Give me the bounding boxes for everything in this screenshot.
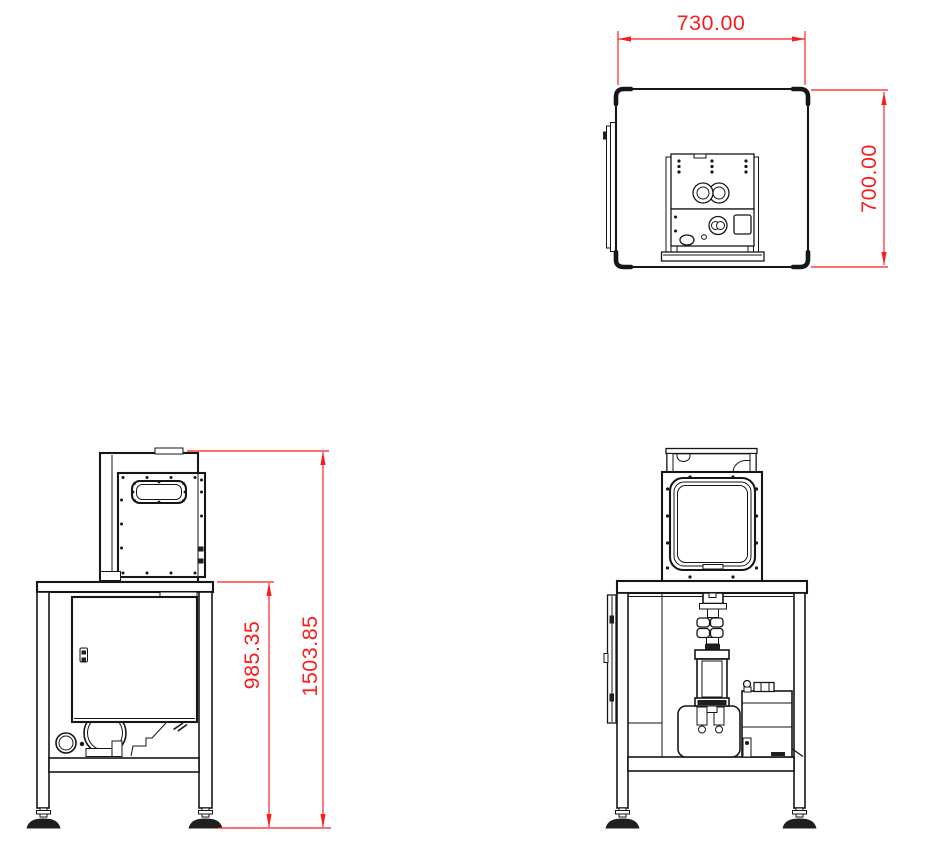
tabletop (617, 581, 807, 593)
dim-overall-height-text: 1503.85 (298, 615, 322, 696)
top-view-door-edge (603, 123, 616, 252)
front-view (27, 448, 223, 829)
side-view (604, 449, 817, 829)
dim-depth-text: 700.00 (857, 144, 881, 213)
tabletop (37, 582, 213, 592)
oval-port (680, 235, 694, 245)
knob (709, 217, 727, 235)
right-leg (794, 593, 805, 808)
side-lid (666, 449, 757, 473)
left-leg (37, 592, 49, 808)
engineering-drawing: 730.00 700.00 985.35 1503.85 (0, 0, 939, 862)
levelling-feet (606, 808, 817, 829)
dimension-table-height: 985.35 (217, 582, 274, 828)
dim-width-text: 730.00 (677, 11, 746, 35)
hopper-top-tab (155, 448, 183, 454)
dimension-depth: 700.00 (811, 90, 888, 267)
valve-actuator-stack (695, 593, 729, 713)
top-view (603, 89, 808, 267)
left-leg (617, 593, 628, 808)
square-port (734, 215, 751, 234)
right-leg (199, 592, 212, 808)
dim-table-height-text: 985.35 (240, 621, 264, 690)
dimension-width: 730.00 (618, 11, 805, 85)
pump-body (678, 706, 740, 757)
levelling-feet (27, 808, 223, 829)
lower-shelf (628, 757, 794, 771)
cable-gland (744, 681, 751, 688)
lower-shelf (49, 758, 199, 772)
top-view-internal-assembly (662, 154, 765, 261)
drawing-sheet: 730.00 700.00 985.35 1503.85 (0, 0, 939, 862)
side-door-edge (604, 595, 616, 723)
twin-ports (693, 183, 729, 203)
cabinet-door (72, 597, 197, 722)
